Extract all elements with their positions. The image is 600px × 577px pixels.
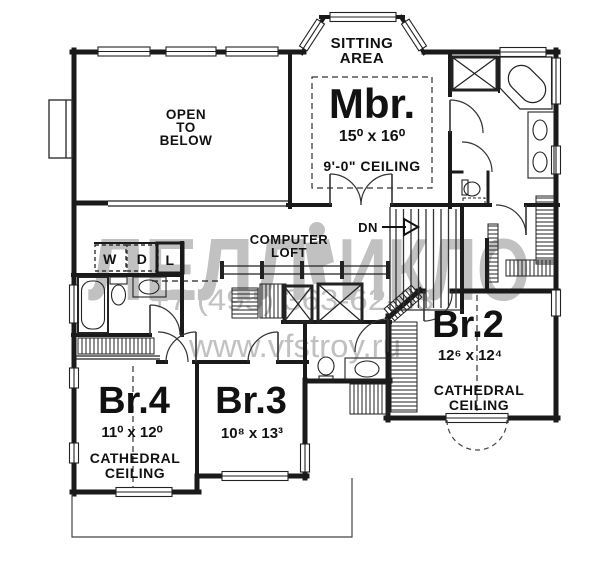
floor-plan-page: { "document": { "type": "second-floor pl… bbox=[0, 0, 600, 577]
toilet bbox=[464, 182, 480, 196]
bedroom4-name: Br.4 bbox=[98, 380, 170, 422]
sink bbox=[533, 120, 547, 140]
sitting-area-label-2: AREA bbox=[340, 50, 385, 67]
open-to-below-label-3: BELOW bbox=[160, 133, 213, 148]
bedroom2-ceiling-2: CEILING bbox=[449, 397, 509, 413]
dn-label: DN bbox=[358, 220, 378, 235]
chimney-outline bbox=[49, 100, 72, 158]
double-vanity bbox=[528, 112, 554, 178]
bedroom2-name: Br.2 bbox=[432, 304, 504, 346]
bedroom3-name: Br.3 bbox=[215, 380, 287, 422]
dryer-label: D bbox=[137, 251, 148, 267]
sink bbox=[533, 152, 547, 172]
master-bedroom-dims: 15⁰ x 16⁰ bbox=[339, 128, 406, 145]
master-bedroom-ceiling: 9'-0" CEILING bbox=[323, 158, 420, 174]
computer-loft-label-2: LOFT bbox=[271, 245, 307, 260]
watermark-website: www.vfstroy.ru bbox=[188, 328, 401, 364]
floorplan-canvas: ЛЕЛЛ ИКЛО +7 (495) 363-62-63 www.vfstroy… bbox=[0, 0, 600, 577]
bedroom4-ceiling-1: CATHEDRAL bbox=[90, 450, 181, 466]
bedroom4-dims: 11⁰ x 12⁰ bbox=[101, 424, 162, 441]
bedroom3-dims: 10⁸ x 13³ bbox=[221, 425, 283, 442]
bedroom2-dims: 12⁶ x 12⁴ bbox=[438, 347, 502, 364]
linen-label: L bbox=[165, 252, 174, 268]
washer-label: W bbox=[103, 251, 117, 267]
bedroom4-ceiling-2: CEILING bbox=[105, 465, 165, 481]
master-bedroom-name: Mbr. bbox=[329, 80, 415, 127]
bedroom2-ceiling-1: CATHEDRAL bbox=[434, 382, 525, 398]
